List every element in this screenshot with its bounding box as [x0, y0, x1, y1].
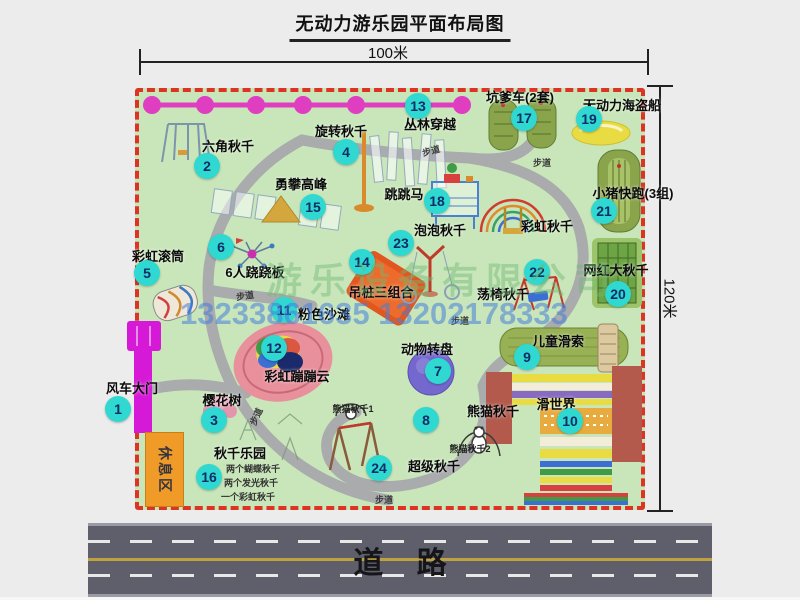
poi-label-carousel: 动物转盘 — [401, 339, 453, 358]
poi-badge-19[interactable]: 19 — [576, 106, 602, 132]
poi-note: 两个蝴蝶秋千 — [226, 462, 280, 475]
poi-label-swing-park: 秋千乐园 — [214, 443, 266, 462]
rest-area: 休息区 — [145, 432, 184, 507]
poi-sublabel-panda1: 熊猫秋千1 — [332, 402, 373, 415]
poi-badge-7[interactable]: 7 — [425, 358, 451, 384]
poi-note: 一个彩虹秋千 — [221, 490, 275, 503]
poi-badge-5[interactable]: 5 — [134, 260, 160, 286]
poi-label-zipline: 儿童滑索 — [532, 331, 584, 350]
rest-area-label: 休息区 — [155, 446, 175, 494]
road-label: 道 路 — [353, 538, 446, 582]
poi-badge-15[interactable]: 15 — [300, 194, 326, 220]
poi-badge-11[interactable]: 11 — [271, 297, 297, 323]
poi-label-seesaw: 6人跷跷板 — [225, 262, 284, 281]
poi-badge-23[interactable]: 23 — [388, 230, 414, 256]
poi-label-hex-swing: 六角秋千 — [202, 136, 254, 155]
poi-badge-18[interactable]: 18 — [424, 188, 450, 214]
poi-label-chair-swing: 荡椅秋千 — [477, 284, 529, 303]
poi-badge-4[interactable]: 4 — [333, 139, 359, 165]
dimension-width-label: 100米 — [368, 42, 408, 63]
trail-label: 步道 — [533, 156, 551, 169]
poi-badge-17[interactable]: 17 — [511, 105, 537, 131]
trail-label: 步道 — [451, 314, 469, 327]
poi-badge-2[interactable]: 2 — [194, 153, 220, 179]
poi-badge-12[interactable]: 12 — [261, 335, 287, 361]
poi-badge-14[interactable]: 14 — [349, 249, 375, 275]
poi-badge-21[interactable]: 21 — [591, 198, 617, 224]
poi-badge-16[interactable]: 16 — [196, 464, 222, 490]
poi-badge-20[interactable]: 20 — [605, 281, 631, 307]
poi-badge-13[interactable]: 13 — [405, 93, 431, 119]
poi-label-jumping-horse: 跳跳马 — [384, 184, 423, 203]
poi-label-windmill-gate: 风车大门 — [106, 378, 158, 397]
park-layout-page: 无动力游乐园平面布局图 100米 120米 — [0, 0, 800, 600]
poi-label-panda-swing: 熊猫秋千 — [467, 401, 519, 420]
dimension-height-label: 120米 — [660, 278, 681, 318]
dimension-tick — [139, 49, 141, 75]
poi-label-super-swing: 超级秋千 — [408, 456, 460, 475]
poi-badge-6[interactable]: 6 — [208, 234, 234, 260]
poi-label-cherry-tree: 樱花树 — [202, 390, 241, 409]
poi-label-bubble-swing: 泡泡秋千 — [414, 220, 466, 239]
road: 道 路 — [88, 523, 712, 597]
poi-badge-22[interactable]: 22 — [524, 259, 550, 285]
dimension-tick — [647, 510, 673, 512]
poi-label-climbing-peak: 勇攀高峰 — [275, 174, 327, 193]
poi-label-net-swing: 网红大秋千 — [583, 260, 648, 279]
poi-badge-1[interactable]: 1 — [105, 396, 131, 422]
poi-label-rainbow-swing: 彩虹秋千 — [521, 216, 573, 235]
poi-label-rotating-swing: 旋转秋千 — [315, 121, 367, 140]
poi-sublabel-panda2: 熊猫秋千2 — [449, 442, 490, 455]
poi-label-pit-car: 坑爹车(2套) — [486, 87, 554, 106]
dimension-tick — [647, 49, 649, 75]
poi-note: 两个发光秋千 — [224, 476, 278, 489]
poi-badge-8[interactable]: 8 — [413, 407, 439, 433]
poi-badge-24[interactable]: 24 — [366, 455, 392, 481]
trail-label: 步道 — [375, 493, 393, 506]
trail-label: 步道 — [235, 288, 255, 303]
page-title: 无动力游乐园平面布局图 — [290, 10, 511, 42]
poi-badge-10[interactable]: 10 — [557, 408, 583, 434]
poi-label-pile-combo: 吊桩三组合 — [348, 282, 413, 301]
poi-badge-3[interactable]: 3 — [201, 407, 227, 433]
poi-label-bounce-cloud: 彩虹蹦蹦云 — [264, 366, 329, 385]
dimension-tick — [647, 85, 673, 87]
poi-label-pink-beach: 粉色沙滩 — [298, 304, 350, 323]
poi-badge-9[interactable]: 9 — [514, 344, 540, 370]
